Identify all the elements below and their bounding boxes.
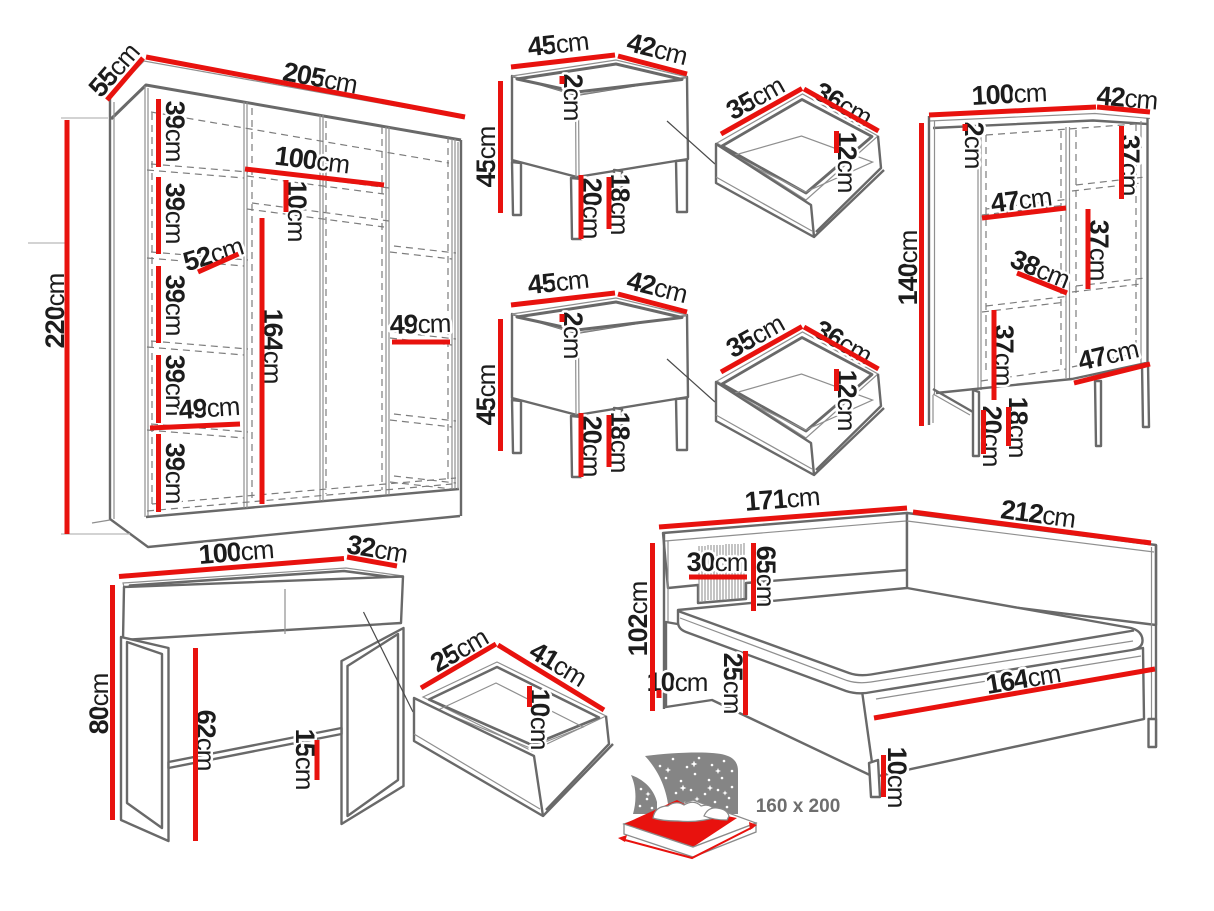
svg-text:10cm: 10cm (882, 747, 912, 808)
svg-text:39cm: 39cm (160, 101, 190, 162)
svg-text:39cm: 39cm (160, 275, 190, 336)
svg-text:39cm: 39cm (160, 443, 190, 504)
svg-text:102cm: 102cm (623, 582, 653, 657)
svg-text:49cm: 49cm (389, 308, 451, 340)
svg-text:140cm: 140cm (893, 231, 923, 306)
svg-text:39cm: 39cm (160, 183, 190, 244)
svg-text:160 x 200: 160 x 200 (756, 796, 841, 817)
svg-text:49cm: 49cm (178, 391, 241, 425)
svg-text:80cm: 80cm (84, 674, 114, 735)
svg-text:100cm: 100cm (971, 77, 1047, 111)
svg-text:171cm: 171cm (744, 481, 821, 517)
svg-text:10cm: 10cm (647, 667, 708, 697)
svg-text:30cm: 30cm (687, 547, 748, 577)
